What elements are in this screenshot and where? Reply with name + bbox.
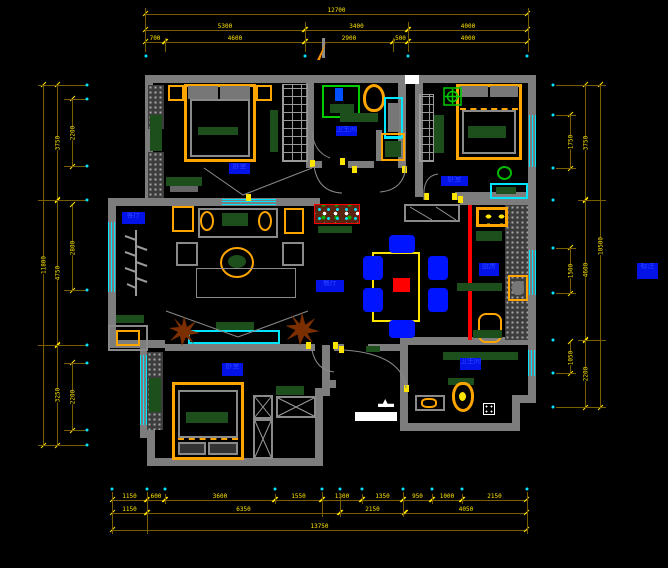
overlay-graphics (0, 0, 668, 568)
door-swing-arcs (312, 132, 438, 388)
potted-plant-icon (169, 313, 320, 347)
entry-arrow-icon (317, 42, 326, 60)
extension-dots (86, 55, 555, 491)
ceiling-fan-icon (444, 88, 461, 105)
plant-tree-icon (125, 230, 147, 296)
cabinet-diagonal-lines (255, 207, 456, 457)
floor-plan-canvas: 12700 5300 3400 4000 700 4600 2900 500 4… (0, 0, 668, 568)
door-swing-lines (166, 168, 312, 337)
